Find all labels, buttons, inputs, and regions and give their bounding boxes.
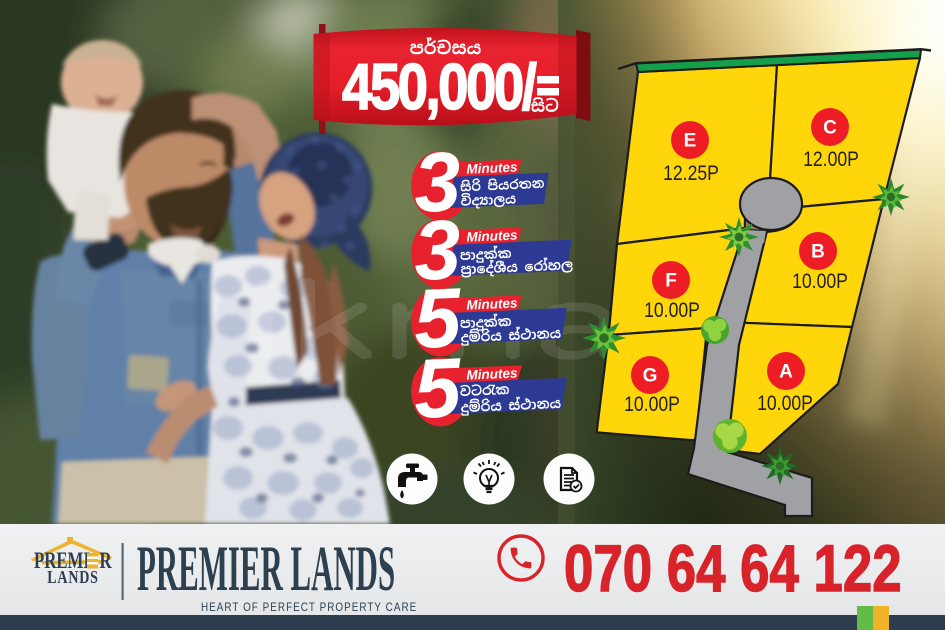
svg-text:450,000/: 450,000/ (342, 51, 537, 124)
svg-text:A: A (779, 362, 793, 383)
svg-text:10.00P: 10.00P (624, 393, 680, 417)
svg-text:Minutes: Minutes (466, 295, 518, 312)
svg-text:12.00P: 12.00P (803, 148, 859, 172)
svg-text:E: E (684, 131, 697, 152)
svg-text:10.00P: 10.00P (644, 299, 700, 323)
svg-text:G: G (643, 366, 658, 387)
svg-text:Minutes: Minutes (466, 365, 518, 382)
svg-text:C: C (823, 118, 837, 139)
svg-text:LANDS: LANDS (47, 569, 98, 588)
svg-text:Minutes: Minutes (466, 159, 518, 176)
svg-text:12.25P: 12.25P (663, 162, 719, 186)
svg-text:Minutes: Minutes (466, 227, 518, 244)
svg-text:070 64 64 122: 070 64 64 122 (564, 531, 902, 605)
svg-text:R: R (100, 549, 113, 574)
svg-text:5: 5 (412, 340, 464, 436)
svg-text:10.00P: 10.00P (792, 270, 848, 294)
svg-text:F: F (665, 271, 677, 292)
svg-text:10.00P: 10.00P (757, 392, 813, 416)
svg-text:PREMIER LANDS: PREMIER LANDS (137, 534, 395, 606)
svg-text:HEART OF PERFECT PROPERTY CARE: HEART OF PERFECT PROPERTY CARE (201, 601, 417, 614)
svg-text:B: B (811, 242, 825, 263)
